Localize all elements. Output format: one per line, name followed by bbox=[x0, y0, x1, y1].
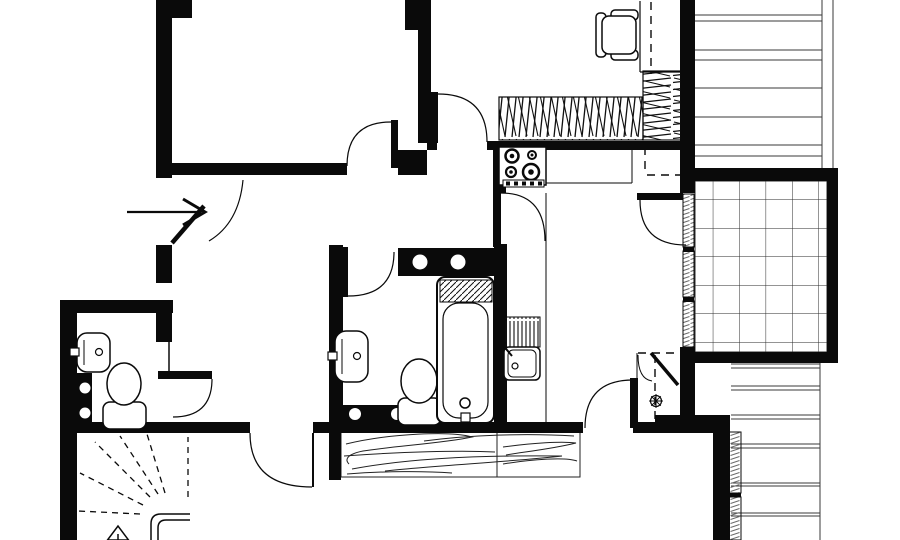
door-swing-arc bbox=[438, 94, 487, 142]
window-glazing bbox=[683, 301, 694, 347]
stove-knob bbox=[522, 182, 526, 186]
wall bbox=[405, 0, 431, 30]
closet-corner-arc bbox=[638, 355, 652, 381]
door-swing-arc bbox=[501, 193, 545, 241]
door-leaf bbox=[391, 120, 398, 168]
stove-knob bbox=[530, 182, 534, 186]
window-mullion bbox=[728, 493, 741, 497]
stove-knob bbox=[514, 182, 518, 186]
stove-knob bbox=[538, 182, 542, 186]
wall bbox=[60, 422, 250, 433]
office-chair-seat bbox=[602, 16, 636, 54]
door-swing-arc bbox=[585, 380, 633, 428]
door-swing-arc bbox=[347, 122, 391, 166]
stove-knob bbox=[506, 182, 510, 186]
wc-toilet-bowl bbox=[107, 363, 141, 405]
wall bbox=[683, 352, 838, 363]
wall bbox=[156, 245, 172, 283]
door-leaf bbox=[342, 247, 348, 297]
entry-door-arc bbox=[209, 180, 243, 241]
wall bbox=[172, 0, 192, 18]
bath-sink bbox=[335, 331, 368, 382]
wall bbox=[427, 142, 437, 150]
stair-tread-dashed bbox=[78, 511, 140, 514]
door-swing-arc bbox=[640, 200, 686, 245]
window-glazing bbox=[683, 251, 694, 297]
door-swing-arc bbox=[250, 433, 312, 487]
stair-handrail bbox=[151, 514, 190, 540]
door-swing-arc bbox=[173, 379, 212, 417]
wall bbox=[156, 300, 172, 342]
floor-plan-drawing bbox=[0, 0, 900, 540]
shaft-pipe bbox=[80, 383, 91, 394]
door-leaf bbox=[431, 92, 438, 143]
stair-tread-dashed bbox=[80, 473, 143, 505]
stove-burner-center bbox=[509, 170, 513, 174]
wall bbox=[398, 150, 427, 175]
stair-tread-dashed bbox=[147, 434, 165, 493]
wc-toilet-tank bbox=[103, 402, 146, 429]
door-leaf bbox=[158, 371, 212, 379]
window-mullion bbox=[683, 297, 694, 302]
wall bbox=[156, 0, 172, 178]
wall bbox=[329, 428, 341, 480]
door-leaf bbox=[637, 193, 683, 200]
bath-toilet-bowl bbox=[401, 359, 437, 403]
wc-sink-tap bbox=[70, 348, 79, 356]
wardrobe-hatch bbox=[643, 71, 681, 140]
shaft-pipe bbox=[80, 408, 91, 419]
shaft-pipe bbox=[413, 255, 428, 270]
wall bbox=[418, 30, 431, 143]
floor-plan bbox=[0, 0, 900, 540]
stove-burner-center bbox=[510, 154, 515, 159]
stove-burner-center bbox=[528, 169, 534, 175]
shaft-pipe bbox=[349, 408, 361, 420]
bathtub-shelf-hatch bbox=[440, 280, 492, 302]
stove-burner-center bbox=[531, 154, 534, 157]
wall bbox=[713, 415, 730, 540]
wall bbox=[156, 163, 347, 175]
balcony-door-glazing bbox=[683, 194, 694, 247]
shaft-pipe bbox=[451, 255, 466, 270]
bathtub-faucet bbox=[461, 413, 470, 422]
bath-sink-tap bbox=[328, 352, 337, 360]
wardrobe-hatch bbox=[499, 97, 643, 140]
window-mullion bbox=[683, 247, 694, 252]
stair-handrail bbox=[158, 520, 190, 540]
wall bbox=[680, 0, 695, 193]
door-swing-arc bbox=[348, 252, 394, 296]
fan-symbol-hub bbox=[654, 399, 657, 402]
kitchen-sink-drainer bbox=[504, 317, 540, 347]
tiled-balcony-floor bbox=[695, 181, 827, 352]
stair-tread-dashed bbox=[95, 442, 150, 497]
wall bbox=[827, 172, 838, 363]
kitchen-sink-faucet-base bbox=[502, 341, 506, 345]
wc-sink bbox=[77, 333, 110, 372]
door-leaf bbox=[493, 190, 501, 247]
wall bbox=[683, 168, 838, 181]
